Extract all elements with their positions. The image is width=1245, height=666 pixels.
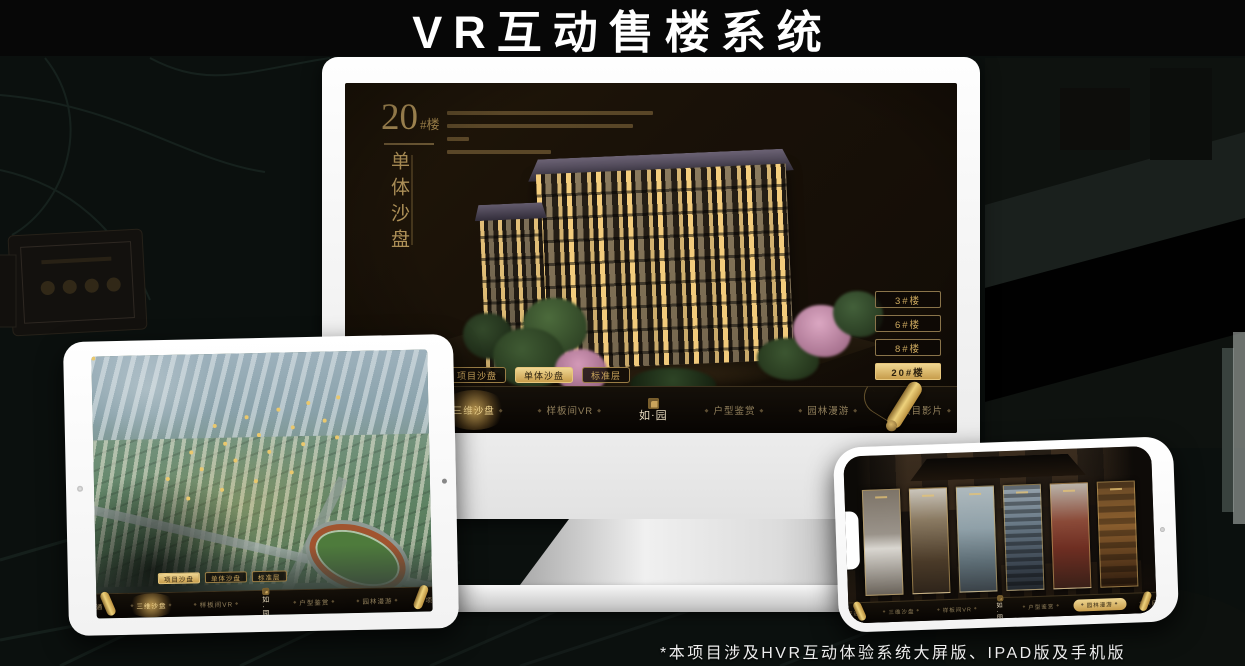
floor-selector: 3#楼 6#楼 8#楼 20#楼 <box>875 291 943 387</box>
logo-seal-icon <box>997 595 1003 601</box>
unit-number: 20 <box>381 97 418 138</box>
floor-button-8[interactable]: 8#楼 <box>875 339 941 356</box>
footnote: *本项目涉及HVR互动体验系统大屏版、IPAD版及手机版 <box>660 639 1126 663</box>
unit-title: 20#楼 <box>381 99 440 136</box>
floor-button-6[interactable]: 6#楼 <box>875 315 941 332</box>
title-band: VR互动售楼系统 <box>0 0 1245 56</box>
nav-item-showroom-vr[interactable]: 样板间VR <box>933 604 982 616</box>
project-logo: 如·园 <box>996 595 1004 621</box>
tab-project-sandbox[interactable]: 项目沙盘 <box>448 367 506 383</box>
logo-seal-icon <box>648 398 659 409</box>
project-logo: 如·园 <box>262 588 271 618</box>
nav-item-unit-plans[interactable]: 户型鉴赏 <box>289 595 339 608</box>
scene-panel[interactable] <box>1097 480 1139 587</box>
tablet-tab-standard-floor[interactable]: 标准层 <box>252 570 287 582</box>
phone-screen-gallery-view: 区位交通 三维沙盘 样板间VR 如·园 户型鉴赏 园林漫游 项目影片 <box>843 446 1157 624</box>
nav-item-unit-plans[interactable]: 户型鉴赏 <box>702 401 768 419</box>
project-logo: 如·园 <box>639 398 668 422</box>
tablet-device-frame: 项目沙盘 单体沙盘 标准层 区位交通 三维沙盘 样板间VR 如·园 户型鉴赏 园… <box>63 334 459 636</box>
scene-panel[interactable] <box>1003 484 1045 591</box>
scene-panel[interactable] <box>862 489 904 596</box>
phone-camera-icon <box>1160 526 1165 531</box>
tab-single-sandbox-active[interactable]: 单体沙盘 <box>515 367 573 383</box>
tablet-screen-aerial-view: 项目沙盘 单体沙盘 标准层 区位交通 三维沙盘 样板间VR 如·园 户型鉴赏 园… <box>91 349 432 618</box>
tablet-home-button[interactable] <box>442 479 447 484</box>
building-number-markers <box>91 356 95 360</box>
scene-panel[interactable] <box>1050 482 1092 589</box>
tablet-tab-project-sandbox-active[interactable]: 项目沙盘 <box>158 572 200 584</box>
floor-button-20-active[interactable]: 20#楼 <box>875 363 941 380</box>
phone-device-frame: 区位交通 三维沙盘 样板间VR 如·园 户型鉴赏 园林漫游 项目影片 <box>833 436 1179 633</box>
aerial-cloud <box>91 349 224 448</box>
nav-item-garden-roam-active[interactable]: 园林漫游 <box>1073 598 1127 612</box>
poster-canvas: 20#楼 单体沙盘 <box>0 0 1245 666</box>
sandbox-mode-tabs: 项目沙盘 单体沙盘 标准层 <box>448 367 630 383</box>
title-divider <box>384 143 434 145</box>
floor-button-3[interactable]: 3#楼 <box>875 291 941 308</box>
nav-item-3d-sandbox-active[interactable]: 三维沙盘 <box>126 593 177 618</box>
tab-standard-floor[interactable]: 标准层 <box>582 367 630 383</box>
nav-item-showroom-vr[interactable]: 样板间VR <box>189 597 243 610</box>
page-title: VR互动售楼系统 <box>412 0 833 61</box>
nav-item-unit-plans[interactable]: 户型鉴赏 <box>1018 601 1064 613</box>
nav-item-showroom-vr[interactable]: 样板间VR <box>535 401 605 419</box>
nav-item-garden-roam[interactable]: 园林漫游 <box>352 594 402 607</box>
tablet-tab-single-sandbox[interactable]: 单体沙盘 <box>205 571 247 583</box>
scene-panel[interactable] <box>909 487 951 594</box>
scene-panel[interactable] <box>956 485 998 592</box>
logo-seal-icon <box>262 588 269 595</box>
phone-notch <box>845 511 860 569</box>
tablet-camera-icon <box>77 486 83 492</box>
nav-item-garden-roam[interactable]: 园林漫游 <box>795 401 861 419</box>
unit-suffix: #楼 <box>420 117 440 132</box>
scene-panel-gallery <box>862 480 1139 595</box>
nav-item-3d-sandbox[interactable]: 三维沙盘 <box>879 606 925 618</box>
wing-roof <box>474 202 547 221</box>
